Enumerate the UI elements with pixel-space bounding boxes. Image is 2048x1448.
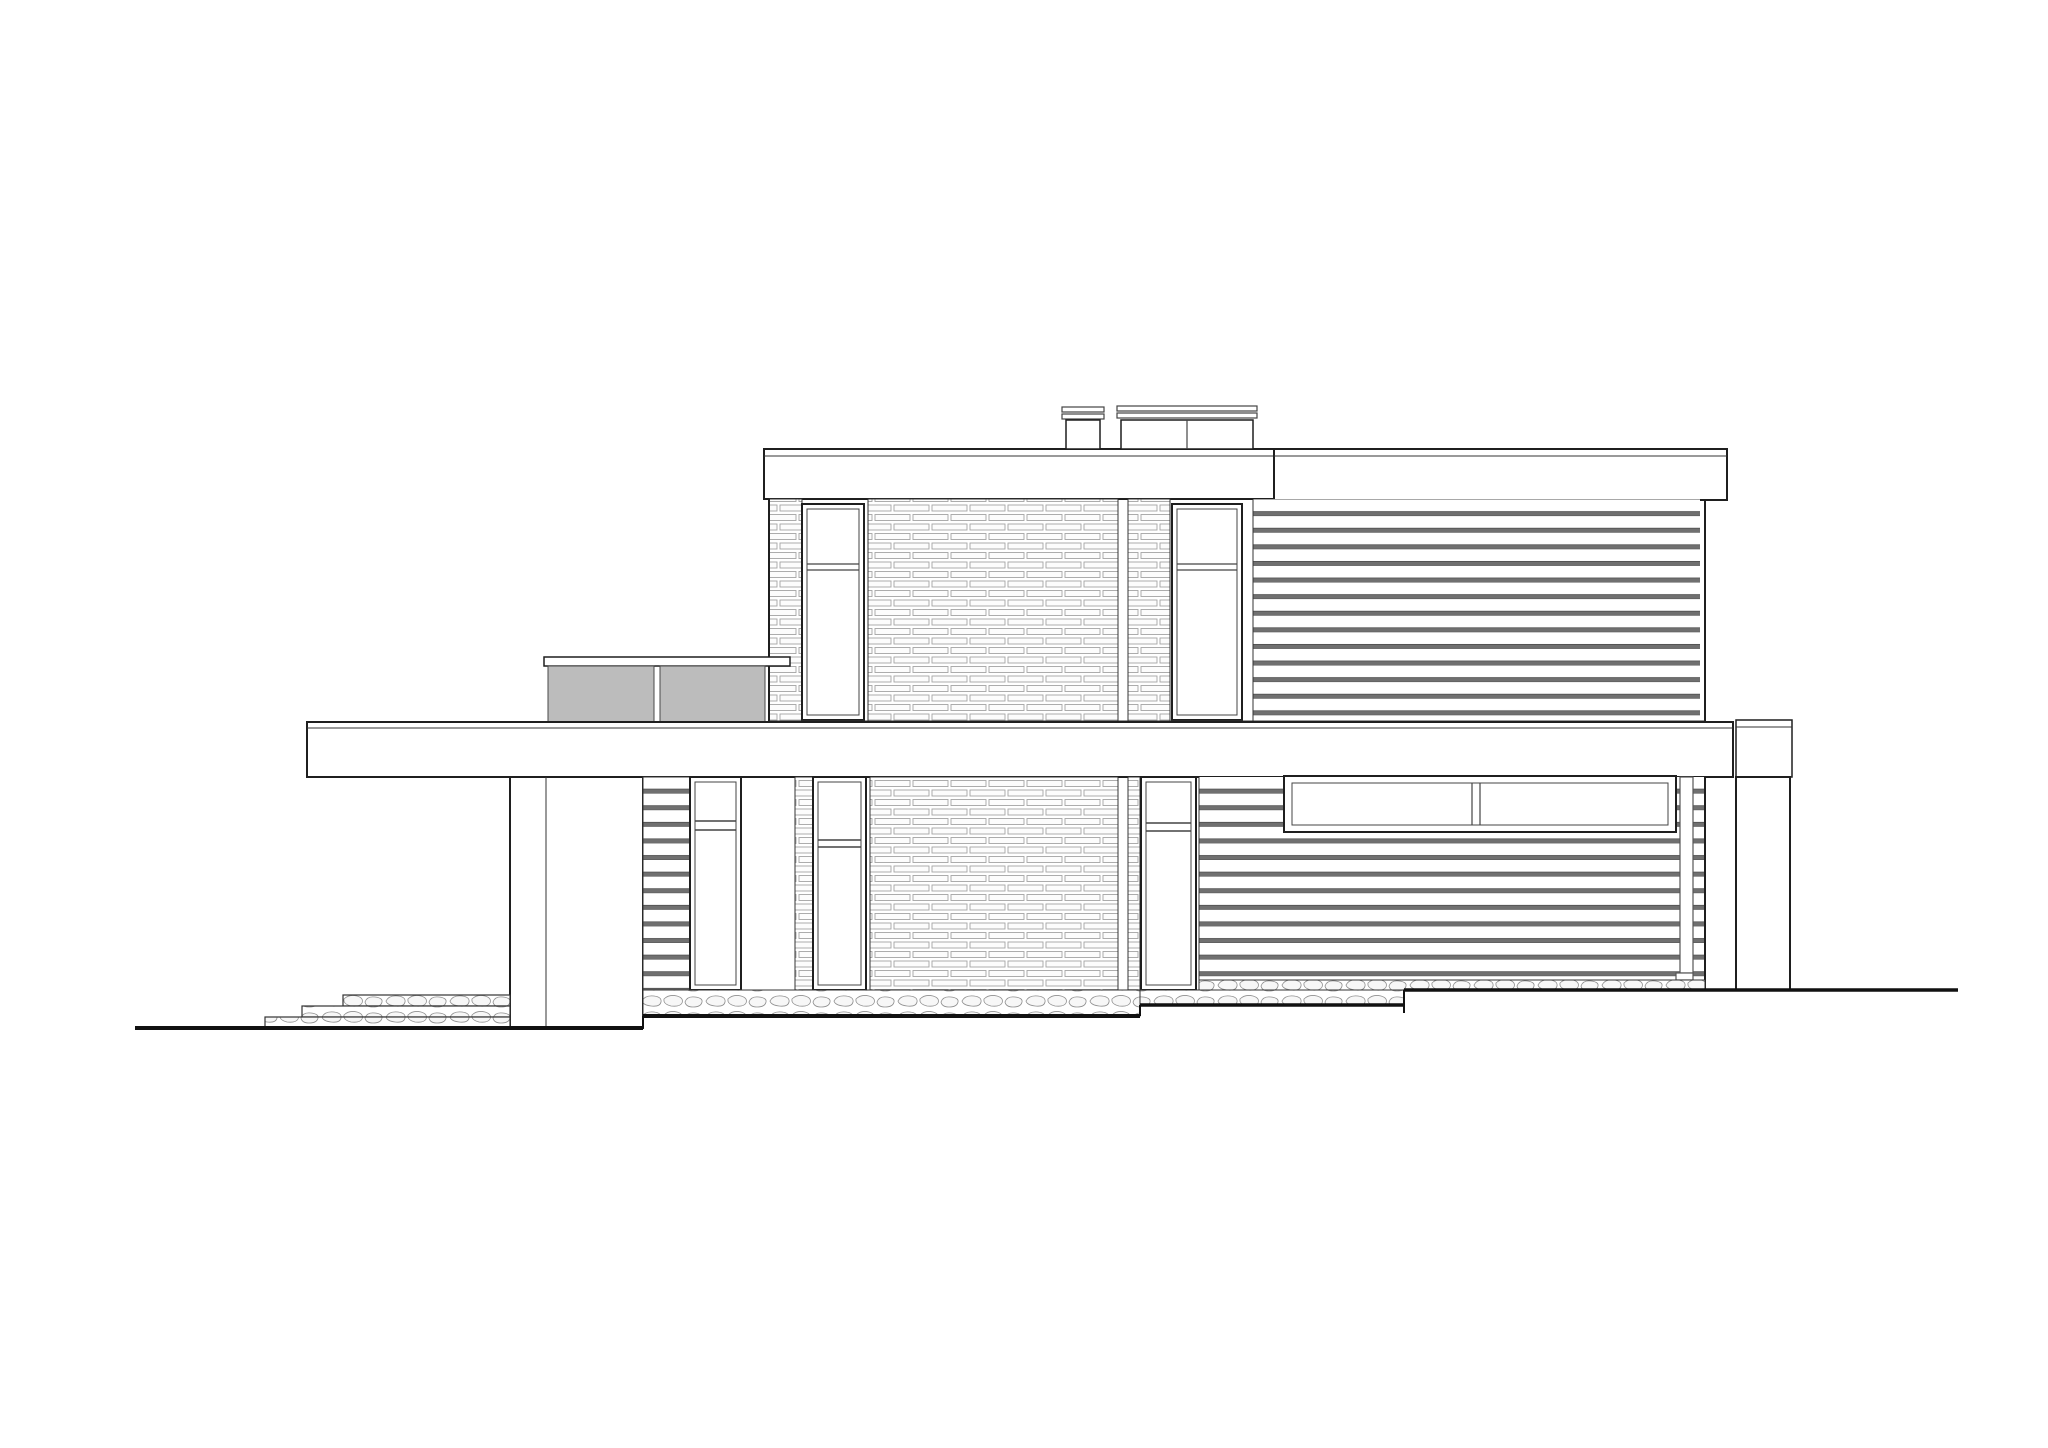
lower-window-a-inner [695,782,736,985]
lower-brick-pier-a [795,777,813,990]
upper-brick-field [868,499,1118,722]
downspout-shoe [1676,973,1693,980]
lower-brick-pier-b [1128,777,1140,990]
lower-window-c-inner [1146,782,1191,985]
upper-brick-pier-narrow [1128,499,1170,722]
chimney-wide-cap-upper [1117,406,1257,411]
terrace-rail-top-bar [544,657,790,666]
stone-base-mid-left [643,990,1140,1016]
terrace-rail-panel-right [660,666,765,722]
downspout [1680,777,1693,973]
upper-wall-brick-corner-left [769,499,802,722]
upper-siding-field [1253,499,1700,722]
lower-pier-left [510,777,643,1028]
terrace-rail-panel-left [548,666,654,722]
stone-base-mid-right [1140,990,1404,1005]
lower-window-b-inner [818,782,861,985]
chimney-small-body [1066,420,1100,449]
chimney-wide-cap-lower [1117,413,1257,418]
lower-siding-strip [643,777,690,990]
chimney-small-cap-upper [1062,407,1104,412]
terrace-step-top [343,995,510,1006]
lower-pier-right [1736,777,1790,990]
lower-brick-field [870,777,1118,990]
elevation-canvas [0,0,2048,1448]
chimney-small-cap-lower [1062,414,1104,419]
mid-floor-slab-right-piece [1736,720,1792,777]
right-roof-slab [1274,449,1727,500]
terrace-step-middle [302,1006,510,1017]
elevation-drawing-page [0,0,2048,1448]
upper-window-right-inner [1177,509,1237,715]
upper-window-left-inner [807,509,859,715]
mid-floor-slab [307,722,1733,777]
